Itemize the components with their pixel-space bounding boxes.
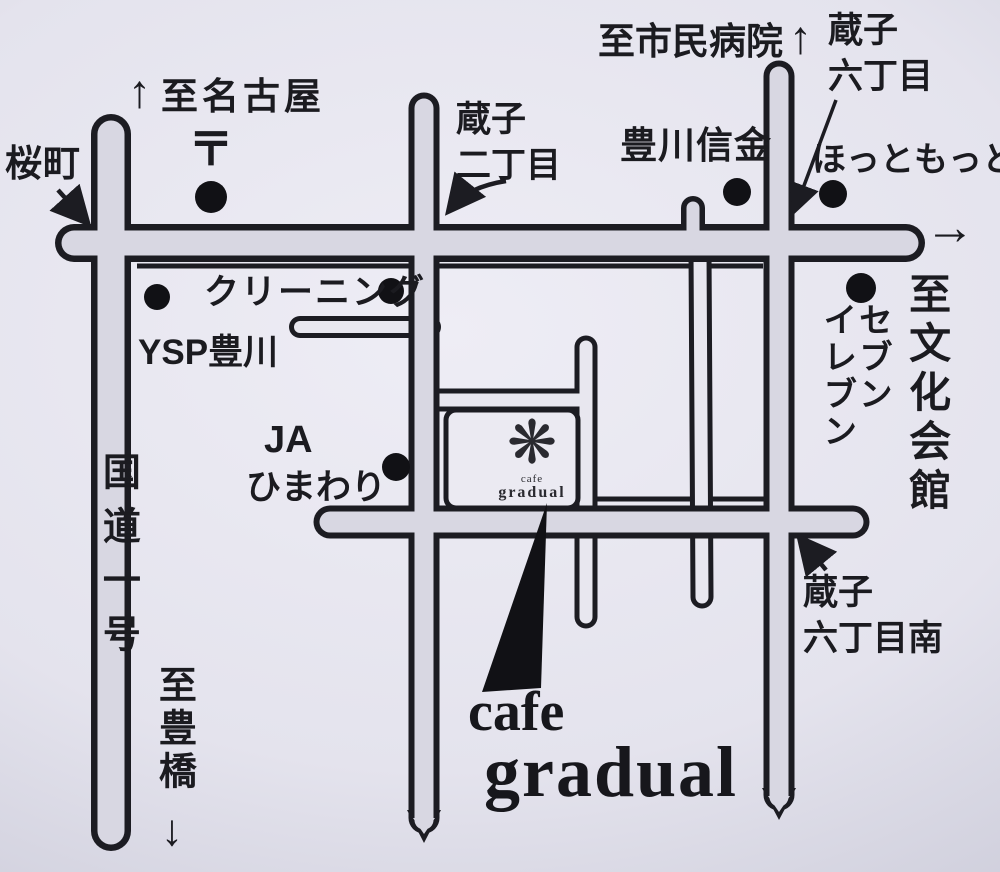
sakuramachi-arrow xyxy=(58,190,84,219)
cafe-tree-icon: ❋ xyxy=(468,414,596,471)
kurako6-minami-line2: 六丁目南 xyxy=(803,616,943,662)
kurako6-line2: 六丁目 xyxy=(828,54,933,100)
right-arrow-icon: → xyxy=(925,202,975,252)
to-bunka-kaikan-label: 至文化会館 xyxy=(899,272,954,517)
ysp-label: YSP豊川 xyxy=(138,330,278,376)
ja-himawari-dot xyxy=(382,453,410,481)
kurako2-line1: 蔵子 xyxy=(456,97,561,143)
hottomotto-dot xyxy=(819,180,847,208)
kurako2-line2: 二丁目 xyxy=(456,143,561,189)
sakuramachi-label: 桜町 xyxy=(5,140,81,188)
hottomotto-label: ほっともっと xyxy=(812,138,1000,182)
ja-himawari-label: JA ひまわり xyxy=(246,416,386,511)
cafe-title-line2: gradual xyxy=(484,736,738,808)
cleaning-dot-left xyxy=(144,284,170,310)
kurako6-line1: 蔵子 xyxy=(828,8,933,54)
ja-line2: ひまわり xyxy=(246,465,386,511)
kurako2-label: 蔵子 二丁目 xyxy=(456,97,561,188)
cafe-map-logo: ❋ cafe gradual xyxy=(468,414,596,502)
cleaning-label: クリーニング xyxy=(204,270,426,316)
post-office-dot xyxy=(195,181,227,213)
kurako6-minami-label: 蔵子 六丁目南 xyxy=(803,570,943,661)
shinkin-dot xyxy=(723,178,751,206)
kurako6-minami-line1: 蔵子 xyxy=(803,570,943,616)
cafe-logo-tiny2: gradual xyxy=(468,484,596,502)
to-hospital-label: 至市民病院 ↑ xyxy=(598,18,812,66)
to-nagoya-text: 至名古屋 xyxy=(161,68,325,121)
seven-eleven-col2: イレブン xyxy=(818,302,854,450)
up-arrow-icon: ↑ xyxy=(128,68,151,114)
access-map: ↑ 至名古屋 〒 桜町 蔵子 二丁目 至市民病院 ↑ 蔵子 六丁目 ほっともっと… xyxy=(0,0,1000,872)
to-hospital-text: 至市民病院 xyxy=(598,18,783,66)
post-office-mark-icon: 〒 xyxy=(188,120,234,180)
seven-eleven-dot xyxy=(846,273,876,303)
to-toyohashi-text: 至豊橋 xyxy=(148,665,197,794)
seven-eleven-col1: セブン xyxy=(854,302,890,450)
route1-label: 国道一号 xyxy=(92,452,141,668)
cafe-title: cafe gradual xyxy=(468,684,738,808)
seven-eleven-label: セブン イレブン xyxy=(818,302,889,450)
kurako6-minami-arrow xyxy=(803,542,826,570)
to-toyohashi-label: 至豊橋 ↓ xyxy=(148,665,196,853)
ja-line1: JA xyxy=(264,416,386,465)
to-nagoya-label: ↑ 至名古屋 xyxy=(128,68,325,121)
down-arrow-icon: ↓ xyxy=(148,809,196,853)
up-arrow-icon: ↑ xyxy=(789,14,812,60)
kurako6-label: 蔵子 六丁目 xyxy=(828,8,933,99)
shinkin-label: 豊川信金 xyxy=(620,122,772,170)
